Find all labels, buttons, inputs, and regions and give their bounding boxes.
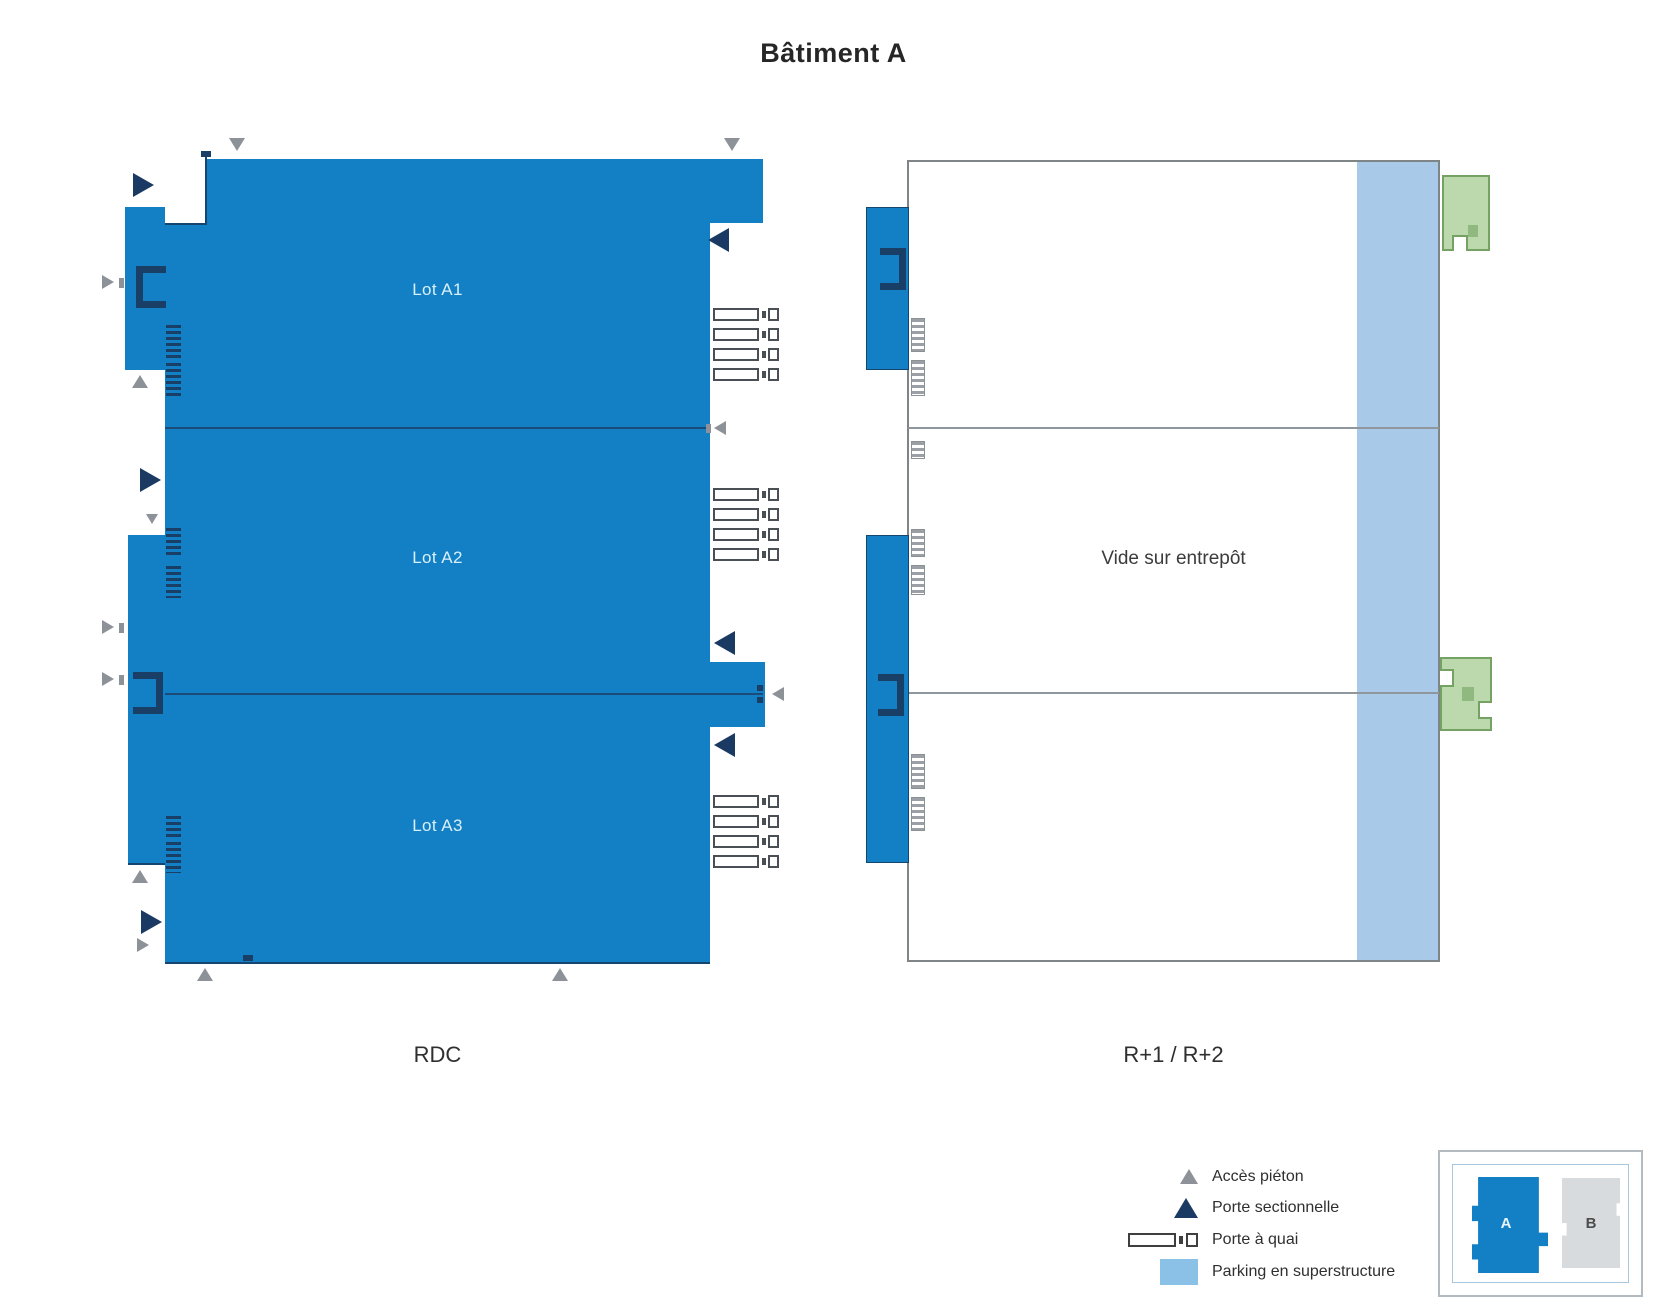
stairs-icon xyxy=(911,360,925,396)
pedestrian-access-icon xyxy=(197,968,213,981)
stairs-icon xyxy=(166,842,181,873)
dock-door-icon xyxy=(713,488,779,501)
stairwell-icon xyxy=(878,674,904,716)
stairwell-icon xyxy=(133,672,163,714)
floorplan-page: Bâtiment A Lot A1 Lot A2 Lot A3 xyxy=(0,0,1667,1300)
stairs-icon xyxy=(911,754,925,789)
pedestrian-access-icon xyxy=(552,968,568,981)
door-tick xyxy=(706,424,711,433)
dock-door-icon xyxy=(713,508,779,521)
divider-a2-a3 xyxy=(165,693,763,695)
void-note: Vide sur entrepôt xyxy=(907,548,1440,570)
pedestrian-access-icon xyxy=(102,275,114,289)
sectional-door-icon xyxy=(140,468,161,492)
door-tick xyxy=(119,278,124,288)
exterior-stair-icon xyxy=(1440,657,1492,731)
pedestrian-access-icon xyxy=(229,138,245,151)
dock-door-icon xyxy=(713,855,779,868)
pedestrian-access-icon xyxy=(132,375,148,388)
pedestrian-access-icon xyxy=(102,672,114,686)
exterior-stair-icon xyxy=(1442,175,1490,251)
sectional-door-icon xyxy=(1174,1198,1198,1218)
warehouse-topright-extension xyxy=(710,159,763,223)
stairwell-icon xyxy=(880,248,906,290)
legend-item-pedestrian: Accès piéton xyxy=(1086,1160,1304,1193)
minimap-building-b-label: B xyxy=(1562,1215,1620,1232)
dock-door-icon xyxy=(713,308,779,321)
sectional-door-icon xyxy=(133,173,154,197)
pedestrian-access-icon xyxy=(724,138,740,151)
pedestrian-access-icon xyxy=(772,687,784,701)
upper-divider-1 xyxy=(908,427,1439,429)
lot-a1-label: Lot A1 xyxy=(165,280,710,300)
pedestrian-access-icon xyxy=(1180,1169,1198,1184)
dock-door-icon xyxy=(713,348,779,361)
pedestrian-access-icon xyxy=(714,421,726,435)
pedestrian-access-icon xyxy=(102,620,114,634)
divider-a1-a2 xyxy=(165,427,710,429)
upper-divider-2 xyxy=(908,692,1439,694)
entrance-notch xyxy=(165,157,207,225)
dock-door-icon xyxy=(713,368,779,381)
stairs-icon xyxy=(911,797,925,831)
dock-door-icon xyxy=(713,548,779,561)
page-title: Bâtiment A xyxy=(0,38,1667,69)
stairs-icon xyxy=(166,566,181,598)
sectional-door-icon xyxy=(141,910,162,934)
door-tick xyxy=(119,623,124,633)
floor-label-rdc: RDC xyxy=(165,1042,710,1068)
superstructure-parking-icon xyxy=(1160,1259,1198,1285)
legend-item-parking: Parking en superstructure xyxy=(1086,1255,1395,1288)
lot-a2-label: Lot A2 xyxy=(165,548,710,568)
dock-door-icon xyxy=(713,528,779,541)
dock-door-icon xyxy=(713,815,779,828)
sectional-door-icon xyxy=(708,228,729,252)
stairs-icon xyxy=(166,325,181,358)
legend-label: Accès piéton xyxy=(1212,1168,1304,1186)
minimap-building-a-label: A xyxy=(1472,1215,1540,1232)
dock-door-icon xyxy=(713,328,779,341)
legend-label: Parking en superstructure xyxy=(1212,1263,1395,1281)
floor-label-upper: R+1 / R+2 xyxy=(907,1042,1440,1068)
dock-door-icon xyxy=(1128,1233,1198,1247)
legend-label: Porte sectionnelle xyxy=(1212,1199,1339,1217)
stairwell-icon xyxy=(136,266,166,308)
lot-a3-label: Lot A3 xyxy=(165,816,710,836)
dock-door-icon xyxy=(713,795,779,808)
stairs-icon xyxy=(166,528,181,558)
legend-item-dock-door: Porte à quai xyxy=(1086,1223,1298,1256)
pedestrian-access-icon xyxy=(146,514,158,524)
door-tick xyxy=(119,675,124,685)
door-tick xyxy=(243,955,253,961)
stairs-icon xyxy=(166,816,181,838)
pedestrian-access-icon xyxy=(137,938,149,952)
door-tick xyxy=(757,697,763,703)
sectional-door-icon xyxy=(714,733,735,757)
dock-door-icon xyxy=(713,835,779,848)
legend-item-sectional: Porte sectionnelle xyxy=(1086,1191,1339,1224)
pedestrian-access-icon xyxy=(132,870,148,883)
stairs-icon xyxy=(911,318,925,352)
legend-label: Porte à quai xyxy=(1212,1231,1298,1249)
sectional-door-icon xyxy=(714,631,735,655)
door-tick xyxy=(757,685,763,691)
stairs-icon xyxy=(166,363,181,398)
door-tick xyxy=(201,151,211,157)
stairs-icon xyxy=(911,441,925,459)
